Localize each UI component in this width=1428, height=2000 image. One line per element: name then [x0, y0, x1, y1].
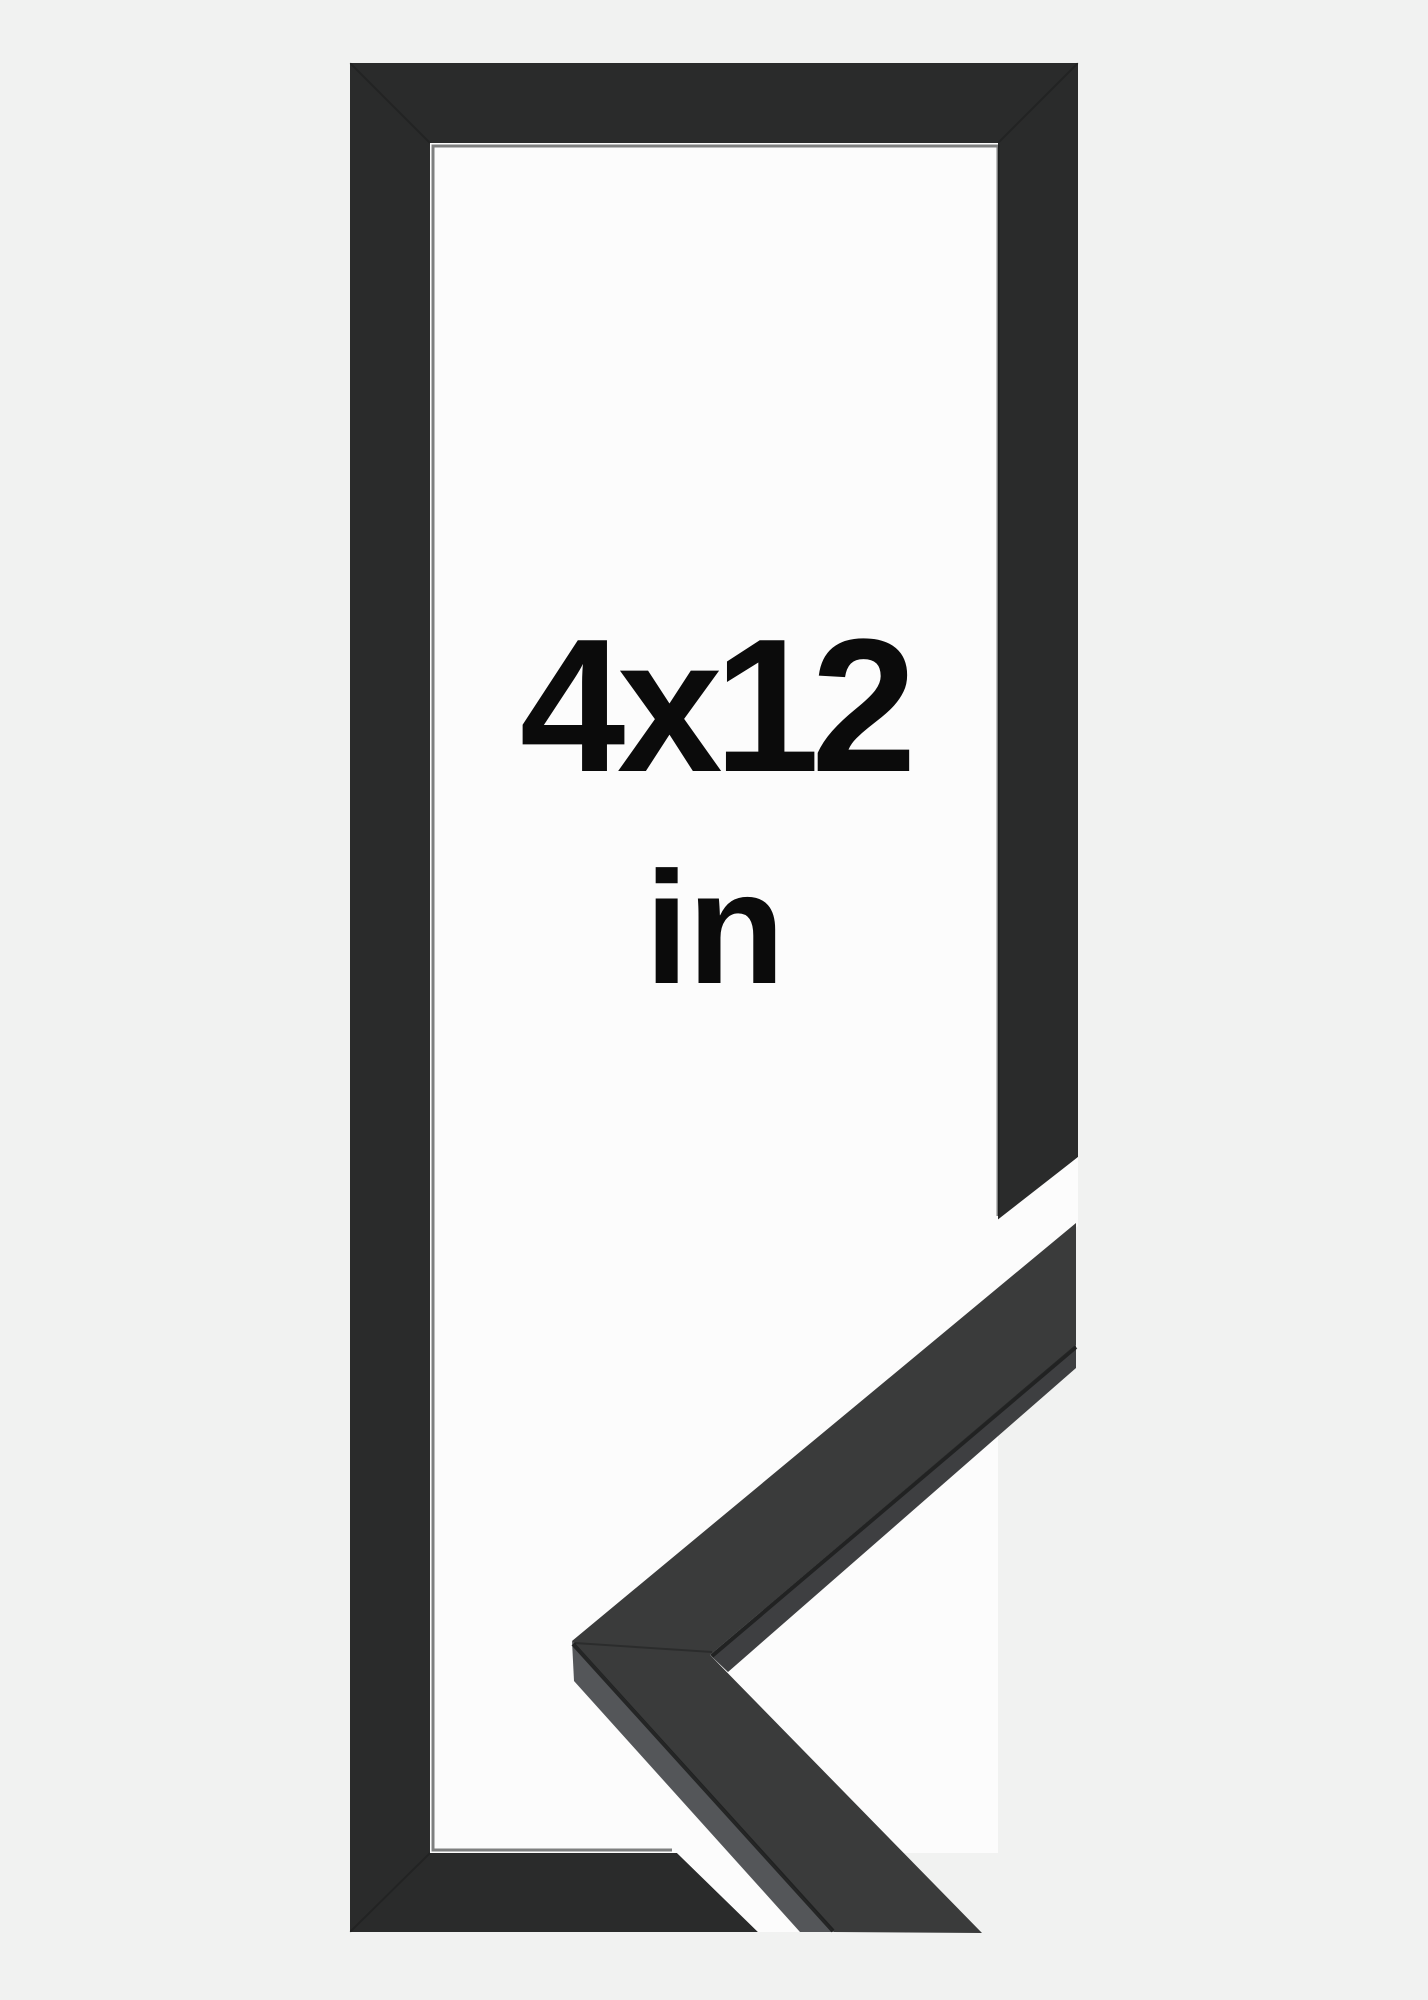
product-photo: 4x12 in — [0, 0, 1428, 2000]
unit-label: in — [350, 848, 1078, 1008]
size-label: 4x12 — [350, 611, 1078, 801]
